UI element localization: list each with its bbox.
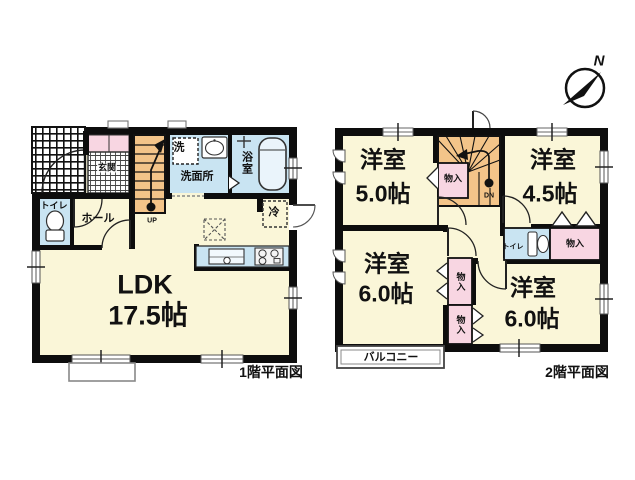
floor1-title: 1階平面図 <box>239 365 303 379</box>
washroom-sink <box>202 137 227 158</box>
fridge-label: 冷 <box>269 208 280 219</box>
room-ne-name: 洋室 <box>530 149 576 172</box>
compass <box>563 69 604 107</box>
ldk-name-label: LDK <box>117 272 173 299</box>
toilet-2f-label: トイレ <box>503 244 524 251</box>
window-north-stairs <box>473 111 490 128</box>
stairs-up-start-dot <box>147 203 156 212</box>
closet-mid-lower-label: 物入 <box>456 315 465 335</box>
top-vent-2 <box>168 121 186 128</box>
floor1-plan <box>27 121 315 381</box>
floorplan-drawing <box>0 0 635 480</box>
entrance-porch <box>32 127 85 193</box>
room-se-name: 洋室 <box>510 277 556 300</box>
ldk-area-label: 17.5帖 <box>108 303 188 330</box>
top-vent-1 <box>108 121 128 128</box>
genkan-tile-floor <box>88 152 129 193</box>
stairs-up-label: UP <box>147 218 157 225</box>
stairs-dn-label: DN <box>484 193 494 200</box>
room-sw-name: 洋室 <box>364 253 410 276</box>
stairs-down-start-dot <box>485 179 494 188</box>
toilet-1f-label: トイレ <box>40 202 67 211</box>
compass-north-label: N <box>594 54 605 69</box>
balcony-label: バルコニー <box>364 353 419 364</box>
toilet-fixture-1f <box>46 211 64 241</box>
genkan-label: 玄関 <box>97 164 117 173</box>
stove <box>255 248 283 265</box>
kitchen-counter <box>196 246 289 267</box>
washroom-label: 洗面所 <box>181 172 214 183</box>
room-ne-area: 4.5帖 <box>523 183 578 206</box>
room-sw-area: 6.0帖 <box>359 283 414 306</box>
floorplan-canvas: LDK 17.5帖 玄関 トイレ ホール 洗 洗面所 浴室 冷 UP 1階平面図… <box>0 0 635 480</box>
kitchen-back-door <box>289 205 315 230</box>
room-se-area: 6.0帖 <box>505 308 560 331</box>
closet-ne-label: 物入 <box>566 240 584 249</box>
washer-label: 洗 <box>174 143 185 154</box>
closet-stairs-label: 物入 <box>444 175 462 184</box>
staircase-1f <box>134 135 165 213</box>
room-nw-name: 洋室 <box>360 149 406 172</box>
room-nw-area: 5.0帖 <box>356 183 411 206</box>
entrance-step-terrace <box>69 363 135 381</box>
floor2-title: 2階平面図 <box>545 365 609 379</box>
hall-label: ホール <box>82 214 115 225</box>
closet-mid-upper-label: 物入 <box>456 272 465 292</box>
bath-label: 浴室 <box>241 151 252 175</box>
bathtub <box>259 138 286 190</box>
